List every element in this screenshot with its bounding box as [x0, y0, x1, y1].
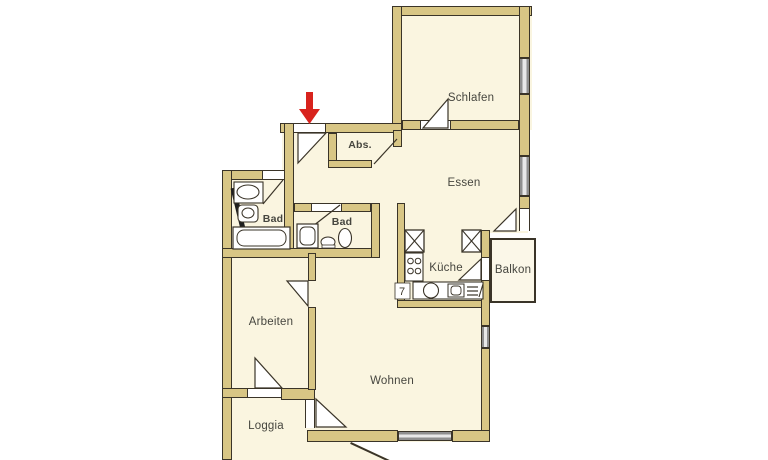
wall-schlafen-bottom-right — [450, 120, 519, 130]
wall-right-essen — [519, 196, 530, 209]
window-essen — [519, 156, 530, 196]
room-label-abs: Abs. — [348, 139, 372, 151]
room-label-bad2: Bad — [332, 216, 352, 228]
room-label-kueche: Küche — [429, 262, 463, 274]
wall-bad2-top-right — [341, 203, 371, 212]
door-gap-essen-balkon — [519, 209, 530, 231]
door-gap-wohnen-loggia — [305, 400, 315, 428]
wall-hall-left — [284, 123, 294, 250]
wall-abs-bottom — [328, 160, 372, 168]
wall-abs-stub — [393, 130, 402, 147]
window-wohnen-bottom — [398, 431, 452, 441]
floor-schlafen — [392, 6, 532, 130]
door-gap-bad1 — [263, 170, 284, 180]
entrance-arrow-icon — [299, 92, 320, 124]
wall-arbeiten-bottom — [222, 388, 248, 398]
room-label-loggia: Loggia — [248, 420, 284, 432]
wall-bad2-right — [371, 203, 380, 258]
window-wohnen-right — [481, 326, 490, 348]
wall-right-upper — [519, 6, 530, 58]
wall-arbeiten-right-upper — [308, 253, 316, 281]
door-gap-schlafen — [421, 120, 450, 130]
room-label-arbeiten: Arbeiten — [249, 316, 293, 328]
room-label-balkon: Balkon — [495, 264, 531, 276]
wall-right-kueche — [481, 230, 490, 258]
room-label-essen: Essen — [448, 177, 481, 189]
wall-schlafen-left — [392, 6, 402, 130]
window-schlafen — [519, 58, 530, 94]
wall-wohnen-bottom-left — [307, 430, 398, 442]
wall-arbeiten-right-lower — [308, 307, 316, 390]
wall-wohnen-bottom-right — [452, 430, 490, 442]
room-label-bad1: Bad — [263, 213, 283, 225]
wall-right-wohnen-1 — [481, 280, 490, 326]
wall-bad-bottom — [222, 248, 380, 258]
room-label-schlafen: Schlafen — [448, 92, 494, 104]
wall-right-mid — [519, 94, 530, 156]
wall-right-wohnen-2 — [481, 348, 490, 442]
floorplan: 7 Schlafen Essen Abs. Bad Bad Küche Balk… — [0, 0, 768, 460]
door-gap-kueche-balkon — [481, 258, 490, 280]
door-gap-arbeiten-loggia — [248, 388, 281, 398]
wall-left-exterior — [222, 170, 232, 460]
door-gap-bad2 — [312, 203, 341, 212]
wall-entrance-right — [325, 123, 402, 133]
wall-kueche-bottom — [397, 300, 487, 308]
wall-kueche-left — [397, 203, 405, 308]
wall-schlafen-top — [392, 6, 532, 16]
wall-schlafen-bottom-left — [402, 120, 421, 130]
room-label-wohnen: Wohnen — [370, 375, 414, 387]
wall-bad2-top-left — [294, 203, 312, 212]
door-gap-entrance — [294, 123, 325, 133]
